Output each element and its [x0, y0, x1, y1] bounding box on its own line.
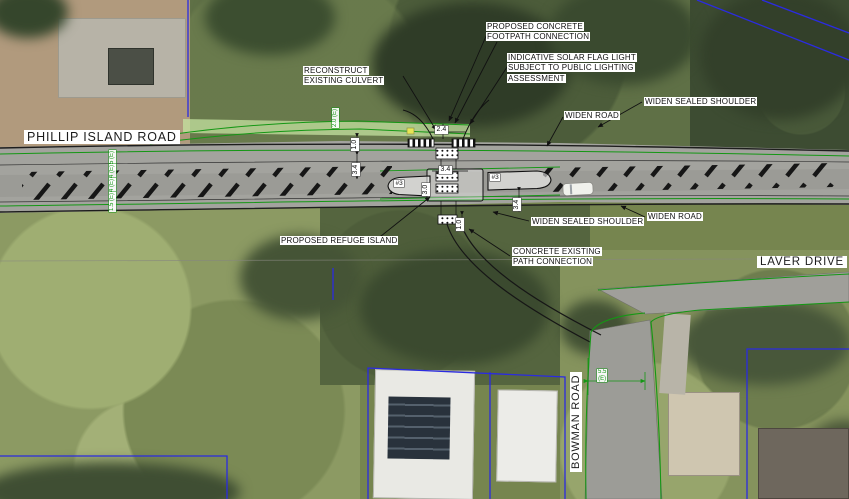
pit-marker — [407, 128, 414, 134]
bowman-road-surface — [585, 320, 662, 499]
pavement-arrow-label: #3 — [394, 180, 404, 187]
dim-lane-right: 3.4 — [513, 198, 521, 211]
path-to-bowman — [461, 224, 601, 335]
dim-island-length: 3.4 — [439, 166, 452, 174]
dim-existing-lane: 1.5 (E) — [109, 192, 116, 212]
dim-bowman-width: 5.5 (E) — [597, 369, 607, 382]
car-on-road — [563, 182, 594, 196]
callout-culvert: RECONSTRUCT EXISTING CULVERT — [303, 66, 397, 87]
callout-footpath-connection: PROPOSED CONCRETE FOOTPATH CONNECTION — [486, 22, 592, 43]
crossing-bar — [452, 139, 475, 147]
crossing-bar — [408, 139, 434, 147]
cadastral-boundaries — [0, 0, 849, 499]
pavement-arrow-label: #3 — [490, 174, 500, 181]
road-label-laver-drive: LAVER DRIVE — [757, 256, 847, 268]
callout-widen-shoulder-top: WIDEN SEALED SHOULDER — [644, 97, 757, 107]
median-hatching — [22, 166, 392, 200]
plan-linework — [0, 0, 849, 499]
dim-island-width: 3.0 — [422, 183, 430, 196]
laver-drive-surface — [598, 272, 849, 314]
island-crossing-pad — [436, 184, 458, 193]
road-label-phillip-island: PHILLIP ISLAND ROAD — [24, 130, 180, 144]
dim-bowman-width-value: 5.5 — [598, 369, 606, 376]
callout-widen-road-top: WIDEN ROAD — [564, 111, 620, 121]
callout-refuge-island: PROPOSED REFUGE ISLAND — [280, 236, 398, 246]
dim-bowman-width-suffix: (E) — [598, 376, 606, 383]
dim-verge-top: 1.0 — [351, 138, 359, 151]
path-to-bowman — [447, 224, 590, 342]
road-label-bowman-road: BOWMAN ROAD — [570, 372, 582, 472]
site-plan: PHILLIP ISLAND ROAD LAVER DRIVE BOWMAN R… — [0, 0, 849, 499]
crossing-pad-south — [438, 215, 457, 224]
crossing-pad-north — [436, 148, 458, 159]
callout-solar-light: INDICATIVE SOLAR FLAG LIGHT SUBJECT TO P… — [507, 53, 667, 84]
callout-widen-shoulder-bottom: WIDEN SEALED SHOULDER — [531, 217, 644, 227]
dim-verge-bottom: 1.0 — [456, 218, 464, 231]
dim-existing-path: 2.0 (E) — [332, 108, 339, 128]
dim-lane-left: 3.4 — [352, 163, 360, 176]
callout-widen-road-bottom: WIDEN ROAD — [647, 212, 703, 222]
dim-crossing-width: 2.4 — [435, 126, 448, 134]
callout-path-connection: CONCRETE EXISTING PATH CONNECTION — [512, 247, 602, 268]
